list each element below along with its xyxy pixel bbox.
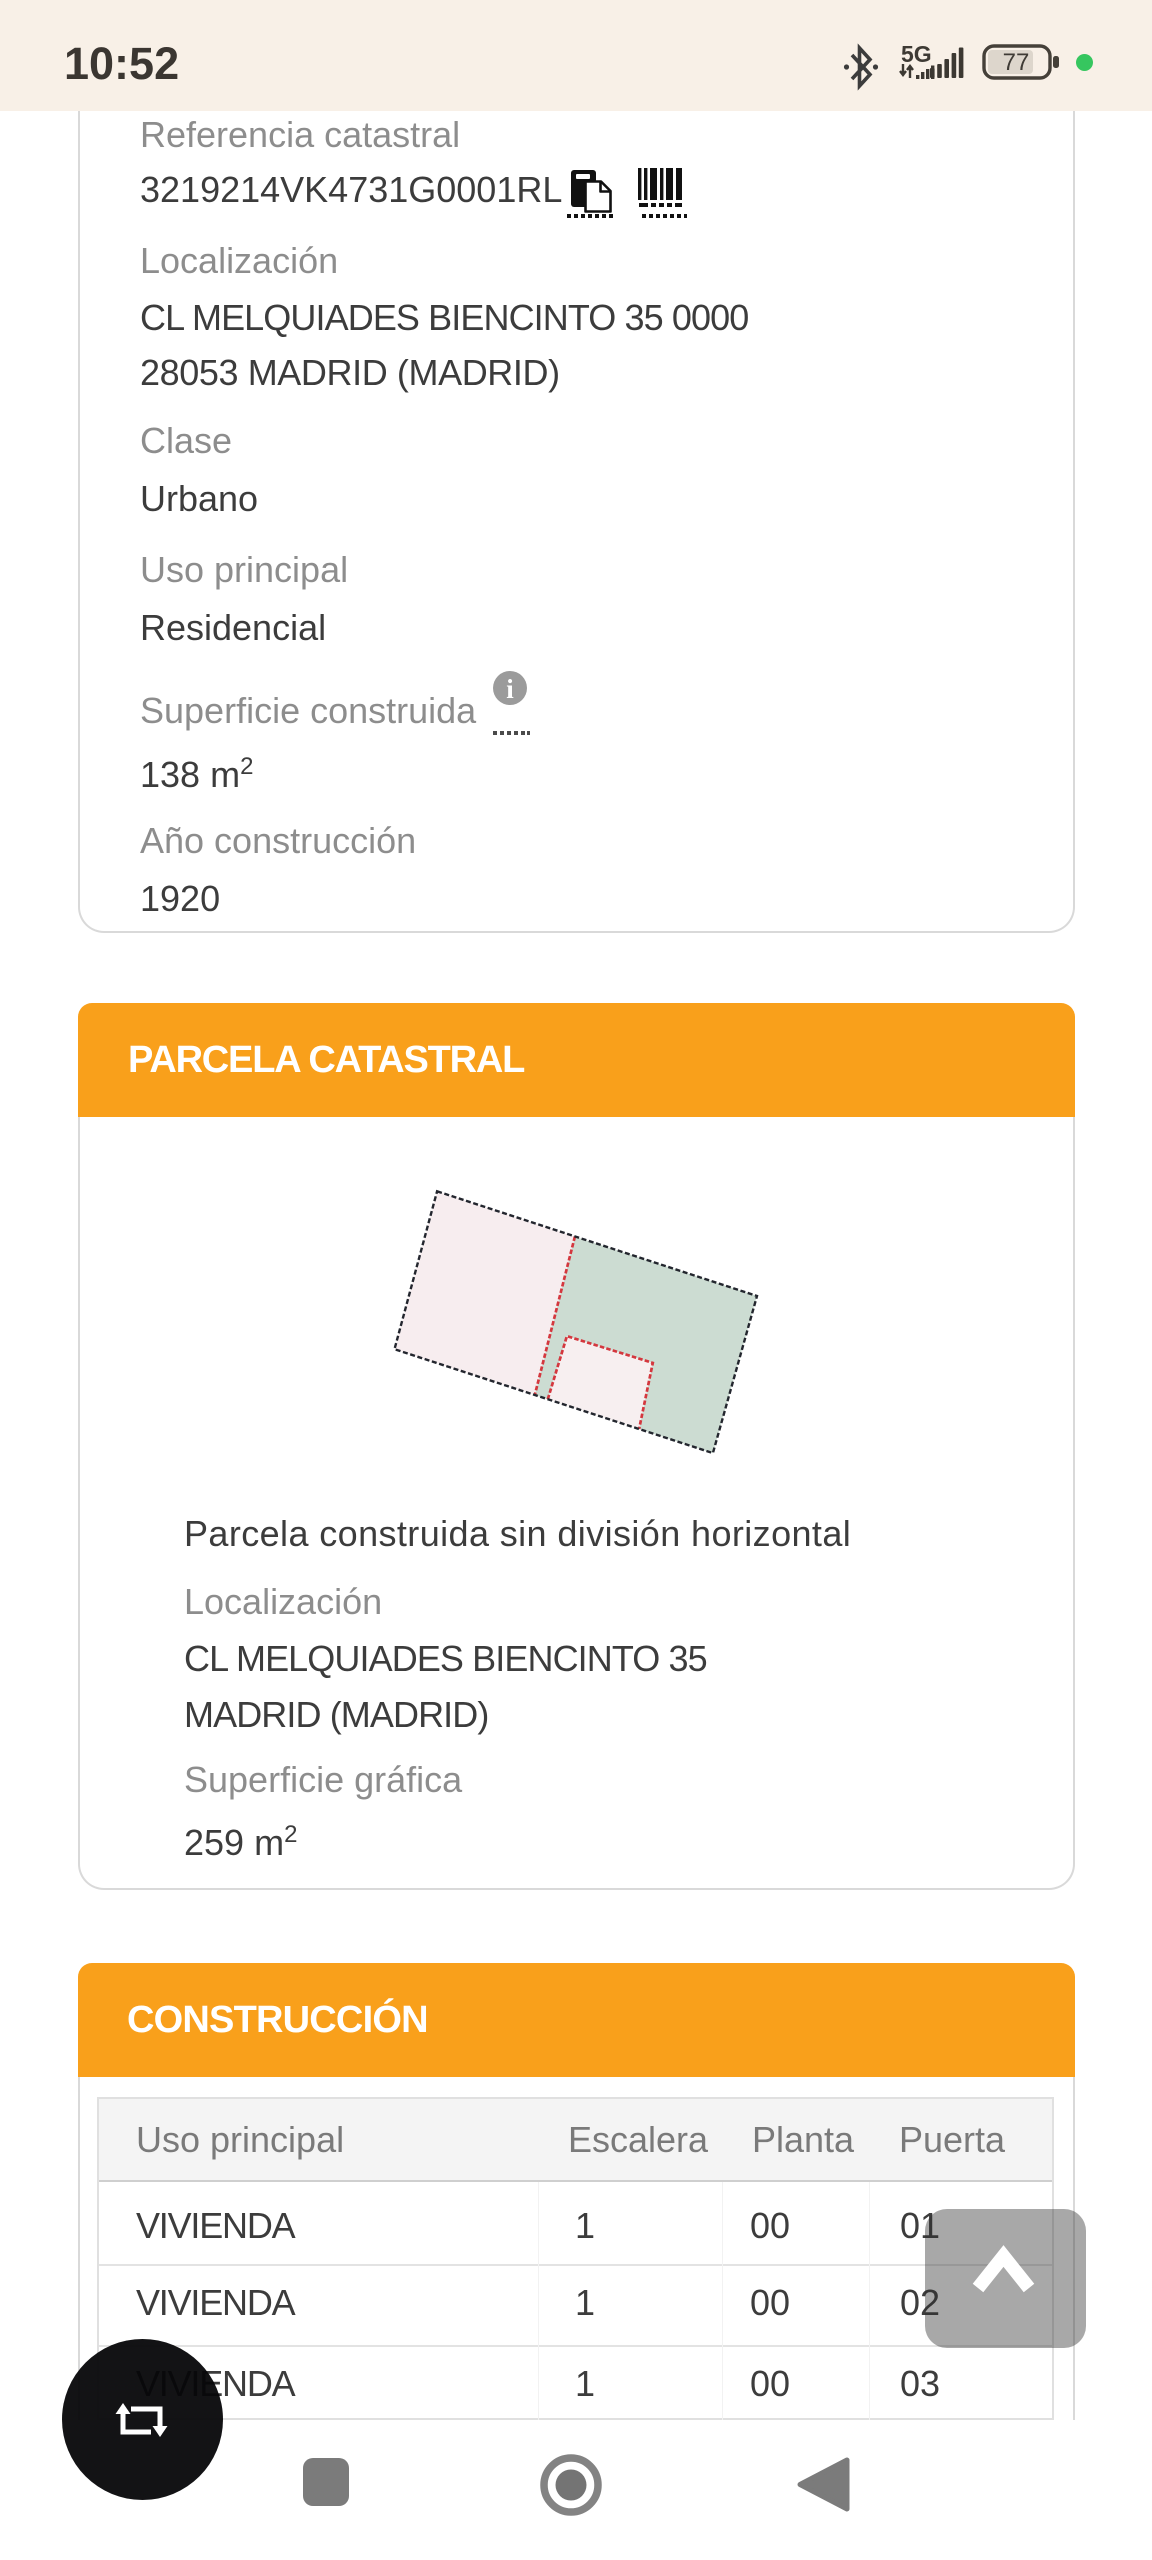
svg-text:i: i [506,674,514,704]
